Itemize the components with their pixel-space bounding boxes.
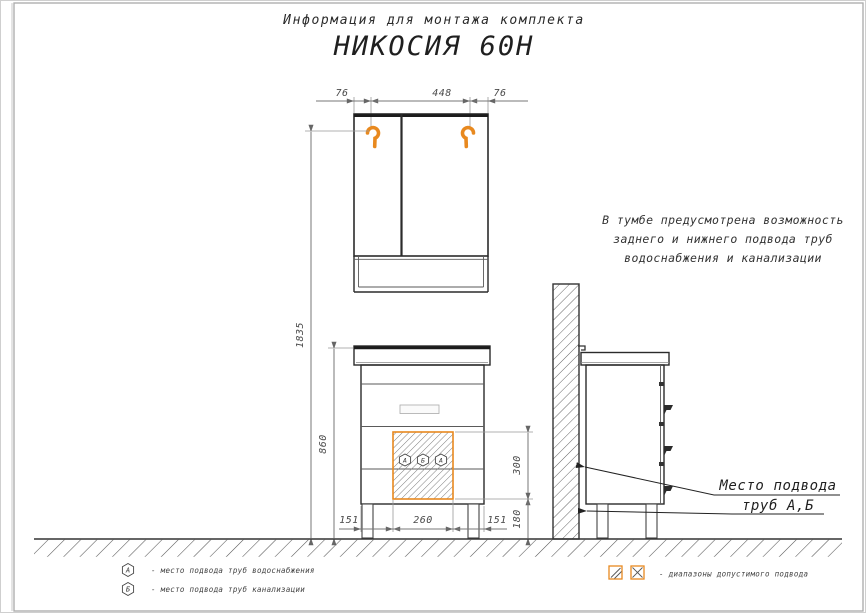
note-block: В тумбе предусмотрена возможность заднег…: [602, 213, 844, 265]
dim-bottom-center: 260: [413, 515, 433, 526]
legend-water-text: - место подвода труб водоснабжения: [151, 566, 315, 575]
dim-cabinet-height: 860: [318, 434, 329, 454]
water-marker-icon: А: [399, 454, 410, 466]
dim-bottom-left: 151: [339, 515, 359, 526]
slide-clip-3: [659, 462, 664, 466]
side-leg-right: [646, 504, 657, 538]
slide-clip-1: [659, 382, 664, 386]
legend-water-icon: А: [122, 564, 133, 577]
water-marker2-letter: А: [438, 456, 443, 464]
dim-top-right: 76: [493, 88, 506, 99]
water-marker2-icon: А: [435, 454, 446, 466]
note-line1: В тумбе предусмотрена возможность: [602, 213, 844, 227]
legend-sewer-icon: Б: [122, 583, 133, 596]
sewer-marker-letter: Б: [421, 456, 425, 464]
dim-bottom-right: 151: [487, 515, 507, 526]
note-line2: заднего и нижнего подвода труб: [613, 232, 833, 246]
side-leg-left: [597, 504, 608, 538]
legend-sewer-text: - место подвода труб канализации: [151, 585, 305, 594]
floor: [34, 539, 842, 557]
dim-total-height: 1835: [295, 322, 306, 348]
technical-drawing: Информация для монтажа комплекта НИКОСИЯ…: [1, 1, 866, 613]
legend-zones-text: - диапазоны допустимого подвода: [659, 570, 808, 579]
connection-zone: А Б А: [393, 432, 453, 499]
legend-water-letter: А: [125, 567, 130, 575]
note-line3: водоснабжения и канализации: [624, 251, 822, 265]
dim-zone-floor: 180: [512, 509, 523, 529]
wall-section: [553, 284, 579, 539]
page-title: НИКОСИЯ 60Н: [333, 31, 535, 62]
dim-top-left: 76: [335, 88, 348, 99]
floor-hatch: [34, 540, 842, 557]
vanity-leg-right: [468, 504, 479, 538]
water-marker-letter: А: [402, 456, 407, 464]
callout-line2: труб А,Б: [742, 498, 814, 514]
drawer-handle-recess: [400, 405, 439, 414]
dim-zone-height: 300: [512, 455, 523, 476]
vanity-leg-left: [362, 504, 373, 538]
callout-line1: Место подвода: [718, 478, 836, 494]
page-subtitle: Информация для монтажа комплекта: [282, 13, 585, 28]
slide-clip-2: [659, 422, 664, 426]
sewer-marker-icon: Б: [417, 454, 428, 466]
installation-drawing-page: Информация для монтажа комплекта НИКОСИЯ…: [0, 0, 866, 613]
dim-top-center: 448: [432, 88, 452, 99]
